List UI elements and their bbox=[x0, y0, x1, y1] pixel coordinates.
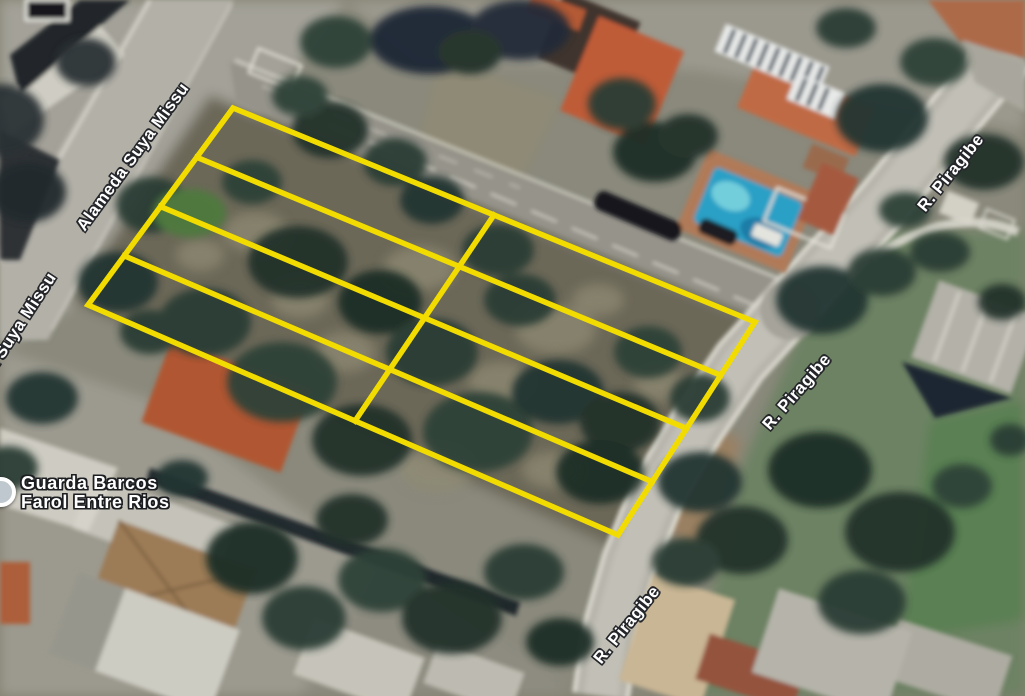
poi-label[interactable]: Guarda Barcos Farol Entre Rios bbox=[21, 474, 170, 512]
building-roof-orange bbox=[0, 562, 30, 624]
poi-name-line1: Guarda Barcos bbox=[21, 474, 170, 493]
satellite-imagery bbox=[0, 0, 1025, 696]
building-roof bbox=[26, 0, 68, 20]
satellite-map[interactable]: Alameda Suya Missu Alameda Suya Missu R.… bbox=[0, 0, 1025, 696]
poi-name-line2: Farol Entre Rios bbox=[21, 493, 170, 512]
